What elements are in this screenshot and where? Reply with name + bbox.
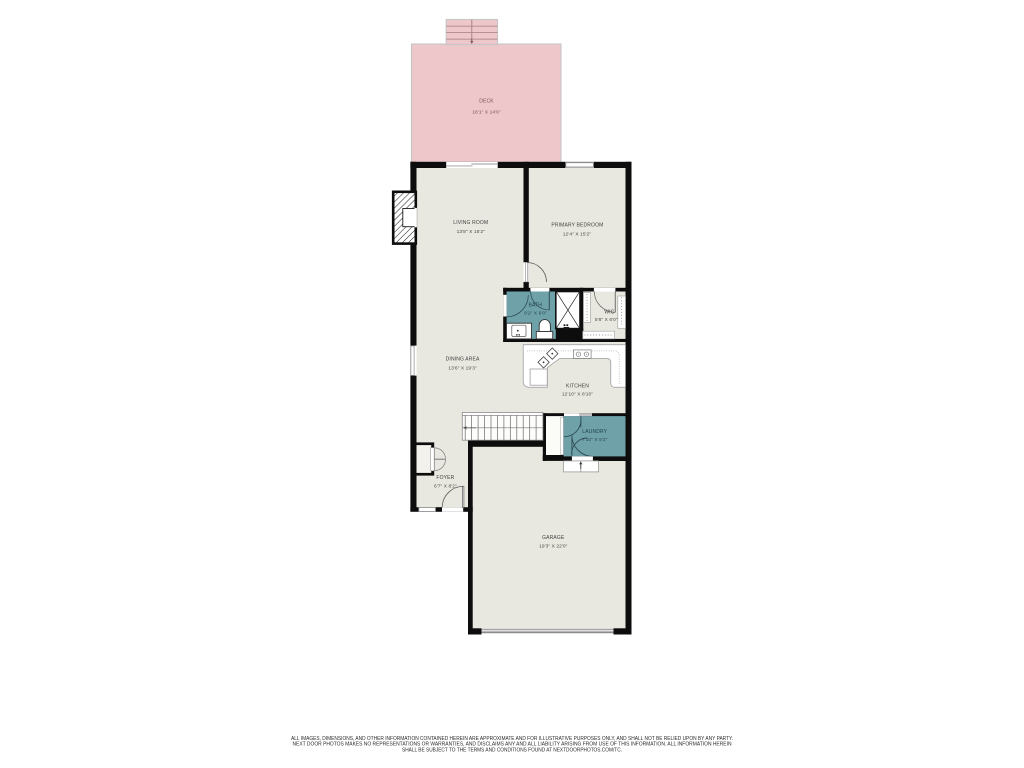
svg-text:FOYER: FOYER xyxy=(436,475,454,481)
svg-text:DINING AREA: DINING AREA xyxy=(446,356,480,362)
svg-text:12'10" X 8'10": 12'10" X 8'10" xyxy=(562,392,593,398)
svg-text:13'6" X 19'3": 13'6" X 19'3" xyxy=(448,366,477,372)
svg-text:12'4" X 15'2": 12'4" X 15'2" xyxy=(563,232,592,238)
svg-text:6'7" X 8'2": 6'7" X 8'2" xyxy=(434,484,457,490)
svg-text:LAUNDRY: LAUNDRY xyxy=(582,429,607,435)
svg-text:5'6" X 6'0": 5'6" X 6'0" xyxy=(595,317,618,323)
svg-text:7'10" X 5'2": 7'10" X 5'2" xyxy=(582,437,608,443)
svg-text:PRIMARY BEDROOM: PRIMARY BEDROOM xyxy=(551,223,603,229)
svg-text:LIVING ROOM: LIVING ROOM xyxy=(453,220,488,226)
svg-text:BATH: BATH xyxy=(529,303,543,309)
svg-text:18'1" X 14'6": 18'1" X 14'6" xyxy=(472,109,501,115)
svg-text:13'8" X 15'2": 13'8" X 15'2" xyxy=(457,229,486,235)
svg-text:19'3" X 22'0": 19'3" X 22'0" xyxy=(539,544,568,550)
svg-text:DECK: DECK xyxy=(479,98,494,104)
svg-text:WIC: WIC xyxy=(604,310,614,316)
svg-text:SHALL BE SUBJECT TO THE TERMS: SHALL BE SUBJECT TO THE TERMS AND CONDIT… xyxy=(402,747,622,753)
svg-text:KITCHEN: KITCHEN xyxy=(566,384,589,390)
svg-text:GARAGE: GARAGE xyxy=(542,535,565,541)
svg-text:9'2" X 6'0": 9'2" X 6'0" xyxy=(524,311,547,317)
